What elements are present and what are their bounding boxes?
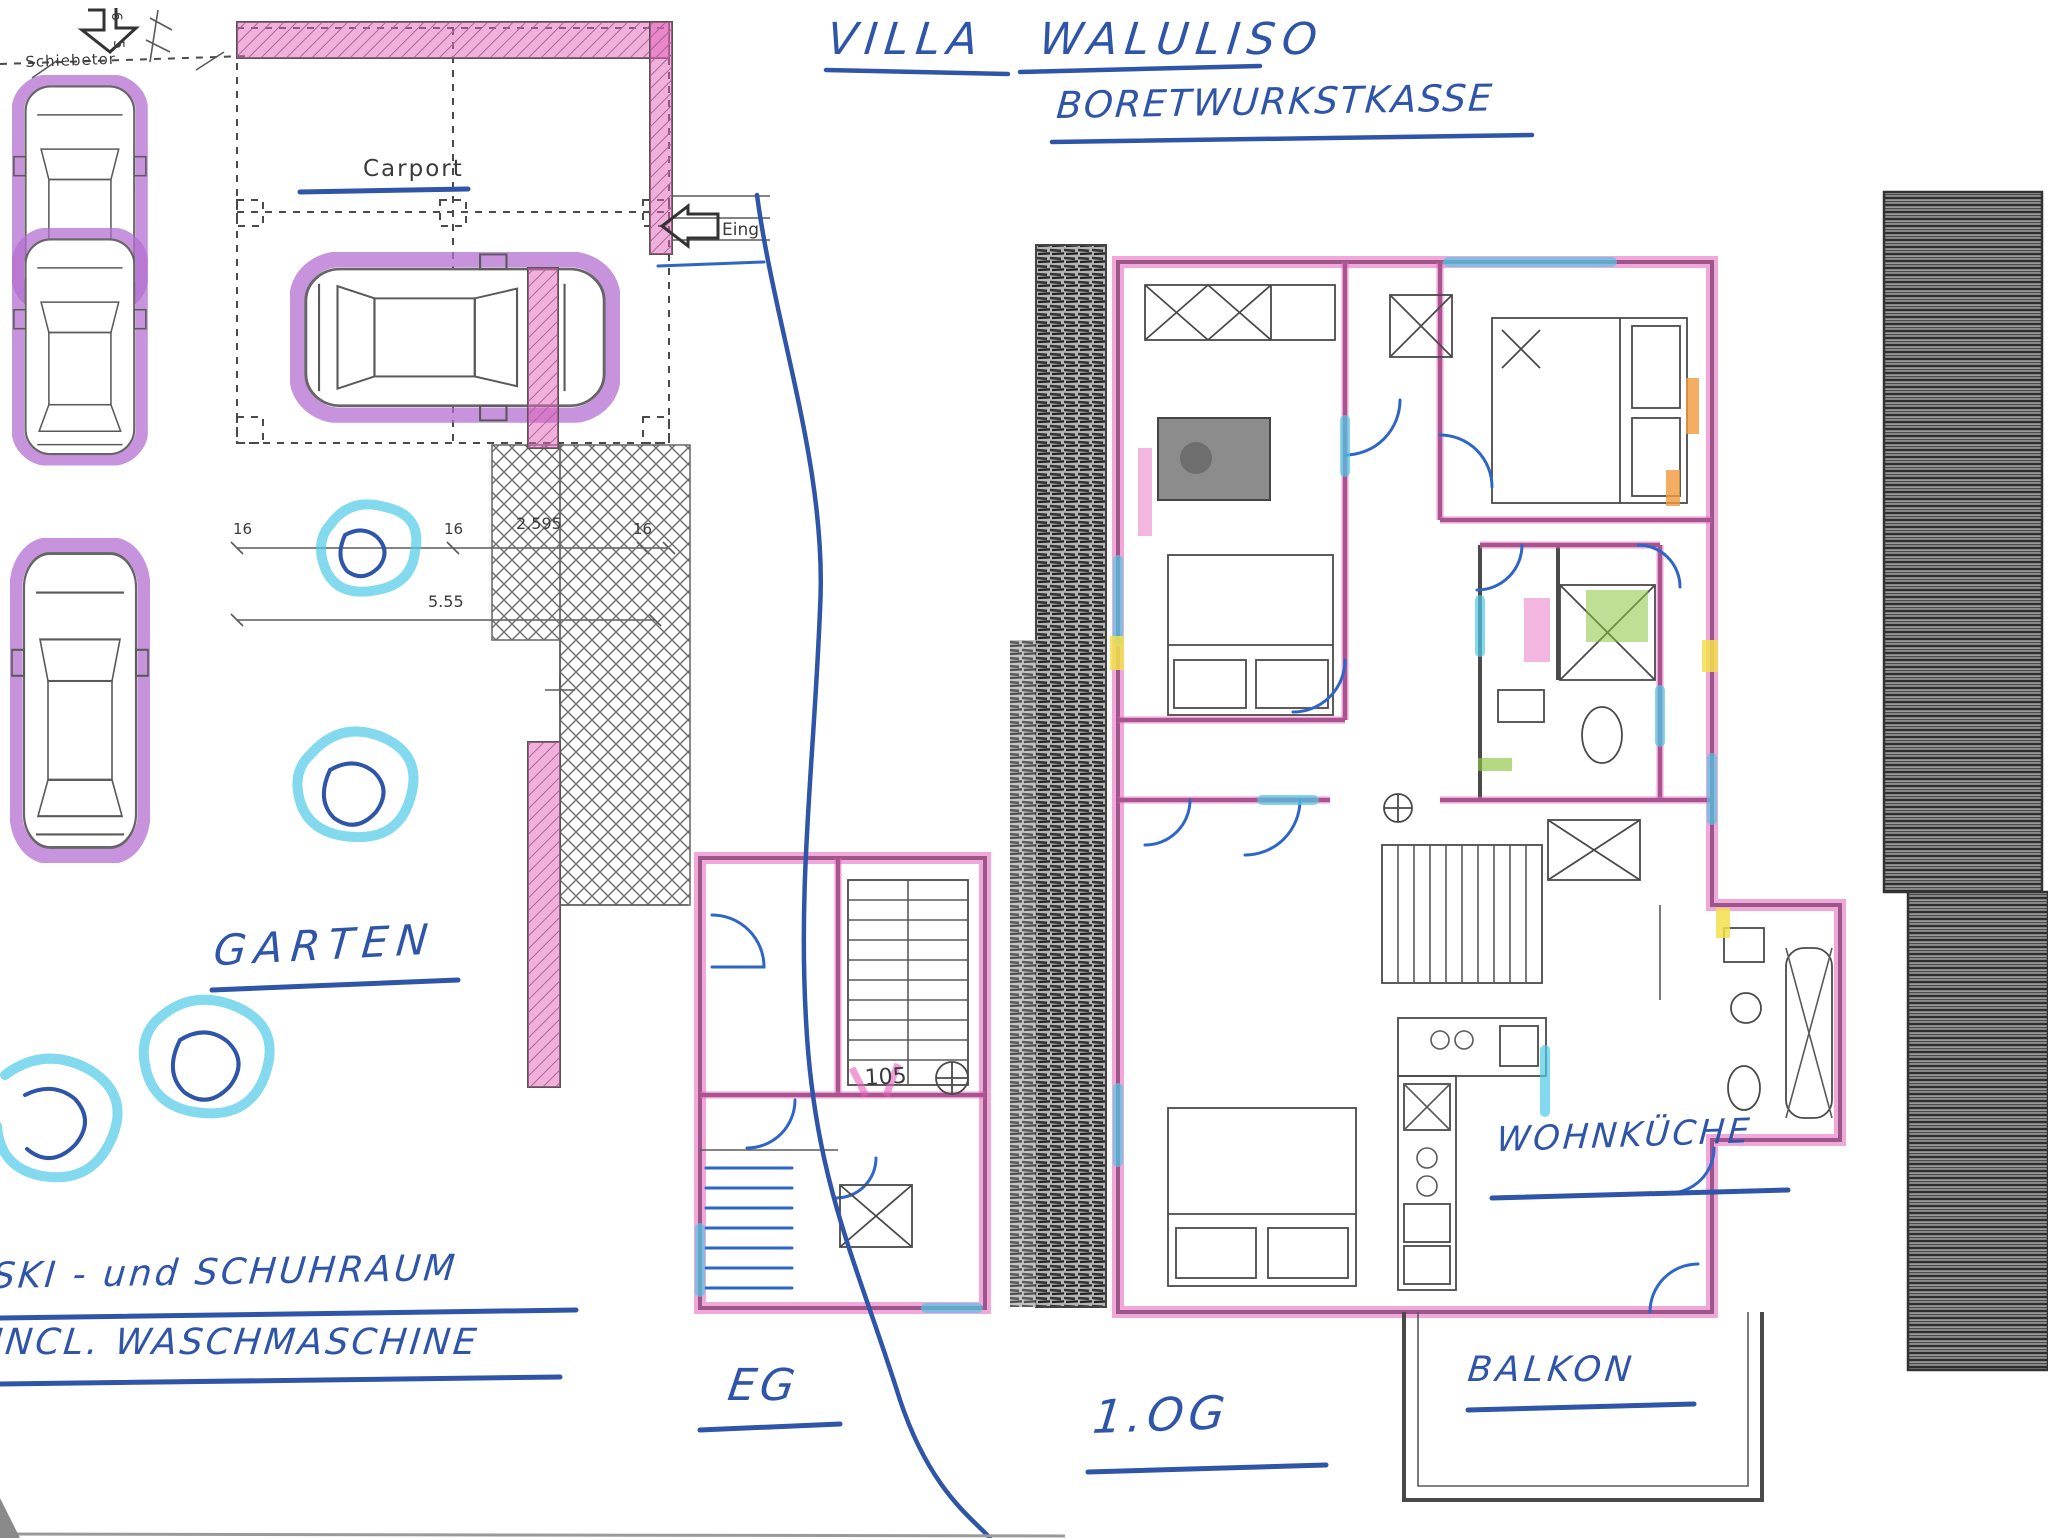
gate-dim-a: 6	[108, 12, 124, 21]
eg-stairs	[848, 880, 968, 1085]
parked-cars	[12, 81, 148, 856]
og-floor-label: 1.OG	[1090, 1385, 1232, 1444]
roof-hatch-bottom	[1908, 892, 2048, 1370]
og-bedroom1	[1145, 285, 1452, 500]
og-cyan-marks	[1118, 262, 1712, 1162]
title-line1: VILLA WALULISO	[825, 14, 1327, 65]
entrance-label: Eing	[722, 220, 759, 240]
eg-floor-label: EG	[725, 1360, 802, 1411]
room-number-105: 105	[864, 1064, 907, 1091]
garden-walls	[528, 268, 560, 1087]
gate-dim-b: 5	[110, 40, 126, 49]
floor-plan-drawing	[0, 0, 2048, 1538]
title-line2: BORETWURKSTKASSE	[1055, 76, 1495, 127]
eg-note-line1: SKI - und SCHUHRAUM	[0, 1248, 459, 1297]
scan-artifacts	[0, 1498, 1065, 1538]
dim-555: 5.55	[428, 592, 464, 611]
eg-ski-rack	[706, 1168, 792, 1288]
site-plan	[0, 8, 770, 1177]
dim-16-b: 16	[444, 520, 463, 538]
carport	[237, 22, 672, 443]
og-wing-bath	[1724, 928, 1832, 1118]
og-stairs	[1382, 794, 1640, 983]
og-bedroom3	[1492, 318, 1687, 503]
balcony-label: BALKON	[1466, 1350, 1637, 1390]
dim-16-c: 16	[633, 520, 652, 538]
terrain-hatch-left	[1036, 245, 1106, 1307]
terrain-hatch-left2	[1010, 640, 1038, 1307]
scanned-floor-plan-page: Schiebetor 6 5 Carport Eing 16 16 2.595 …	[0, 0, 2048, 1538]
eg-plan	[700, 858, 985, 1308]
og-bedroom4	[1168, 1108, 1356, 1286]
og-bedroom2	[1168, 555, 1333, 715]
dim-16-a: 16	[233, 520, 252, 538]
garten-underline	[212, 980, 458, 990]
og-bathroom	[1498, 585, 1655, 763]
carport-label: Carport	[363, 156, 464, 182]
eg-note-line2: INCL. WASCHMASCHINE	[0, 1322, 481, 1363]
sliding-gate-label: Schiebetor	[25, 50, 116, 71]
dim-2595: 2.595	[516, 514, 562, 533]
boundary-line	[757, 195, 990, 1538]
roof-hatch-top	[1884, 192, 2042, 892]
og-plan	[1010, 192, 2048, 1500]
